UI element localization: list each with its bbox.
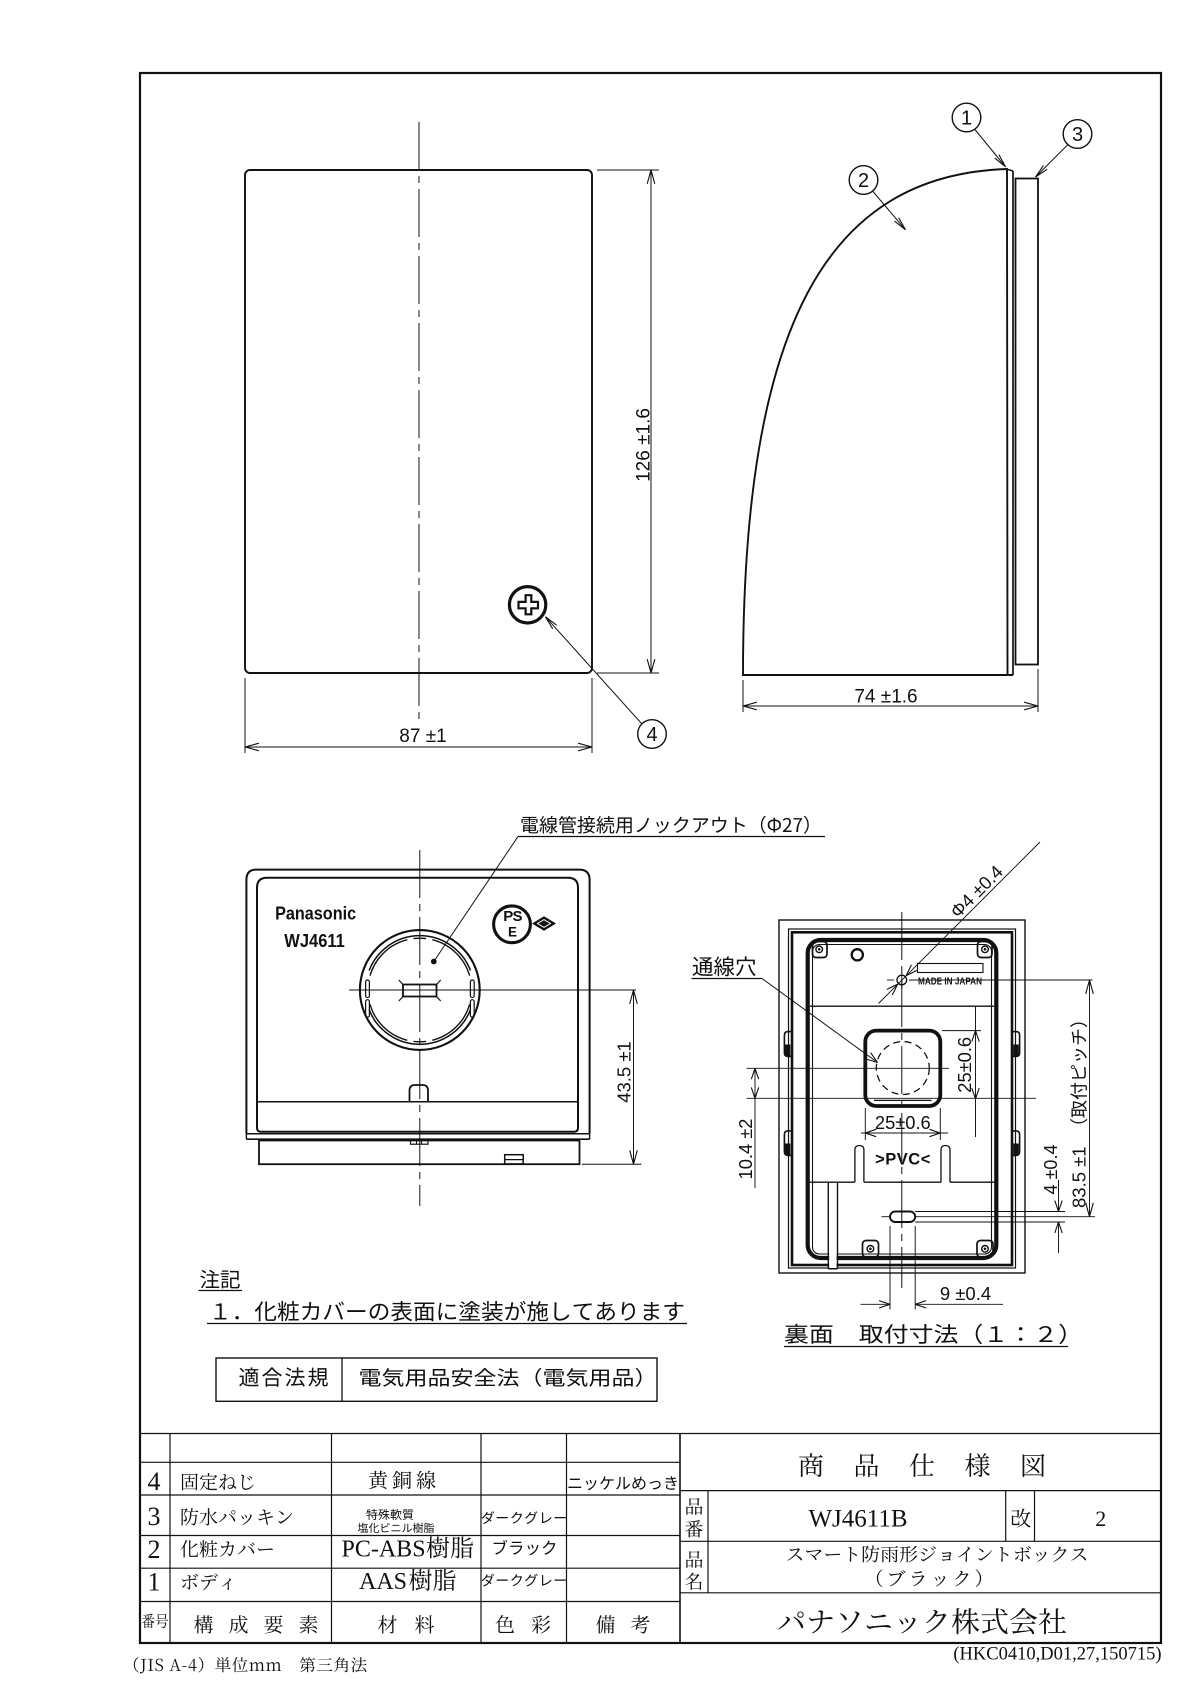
svg-text:25±0.6: 25±0.6 bbox=[875, 1112, 931, 1133]
svg-text:2: 2 bbox=[148, 1535, 161, 1564]
svg-text:10.4 ±2: 10.4 ±2 bbox=[735, 1119, 756, 1180]
svg-text:AAS: AAS bbox=[359, 1569, 407, 1595]
svg-text:PS: PS bbox=[503, 908, 522, 925]
svg-text:25±0.6: 25±0.6 bbox=[954, 1037, 975, 1093]
svg-text:87 ±1: 87 ±1 bbox=[399, 726, 446, 747]
svg-text:2: 2 bbox=[858, 170, 869, 192]
svg-text:2: 2 bbox=[1095, 1506, 1106, 1531]
svg-text:PC-ABS: PC-ABS bbox=[342, 1537, 426, 1563]
svg-text:3: 3 bbox=[148, 1502, 161, 1531]
svg-text:E: E bbox=[508, 925, 517, 940]
svg-text:4: 4 bbox=[148, 1467, 161, 1496]
svg-text:9 ±0.4: 9 ±0.4 bbox=[940, 1283, 991, 1304]
svg-text:3: 3 bbox=[1072, 124, 1083, 146]
svg-text:43.5 ±1: 43.5 ±1 bbox=[614, 1041, 635, 1103]
svg-text:4 ±0.4: 4 ±0.4 bbox=[1041, 1145, 1061, 1195]
svg-text:4: 4 bbox=[646, 724, 657, 746]
svg-text:>PVC<: >PVC< bbox=[875, 1151, 931, 1169]
svg-text:1: 1 bbox=[961, 108, 972, 130]
svg-text:126 ±1.6: 126 ±1.6 bbox=[634, 408, 655, 482]
svg-text:MADE IN JAPAN: MADE IN JAPAN bbox=[918, 977, 982, 988]
svg-text:WJ4611: WJ4611 bbox=[284, 931, 345, 951]
svg-text:1: 1 bbox=[148, 1568, 161, 1597]
svg-text:WJ4611B: WJ4611B bbox=[808, 1506, 907, 1533]
svg-text:83.5 ±1: 83.5 ±1 bbox=[1069, 1146, 1090, 1208]
svg-text:Panasonic: Panasonic bbox=[275, 903, 356, 924]
svg-text:74 ±1.6: 74 ±1.6 bbox=[854, 687, 917, 708]
svg-text:(HKC0410,D01,27,150715): (HKC0410,D01,27,150715) bbox=[953, 1645, 1161, 1665]
